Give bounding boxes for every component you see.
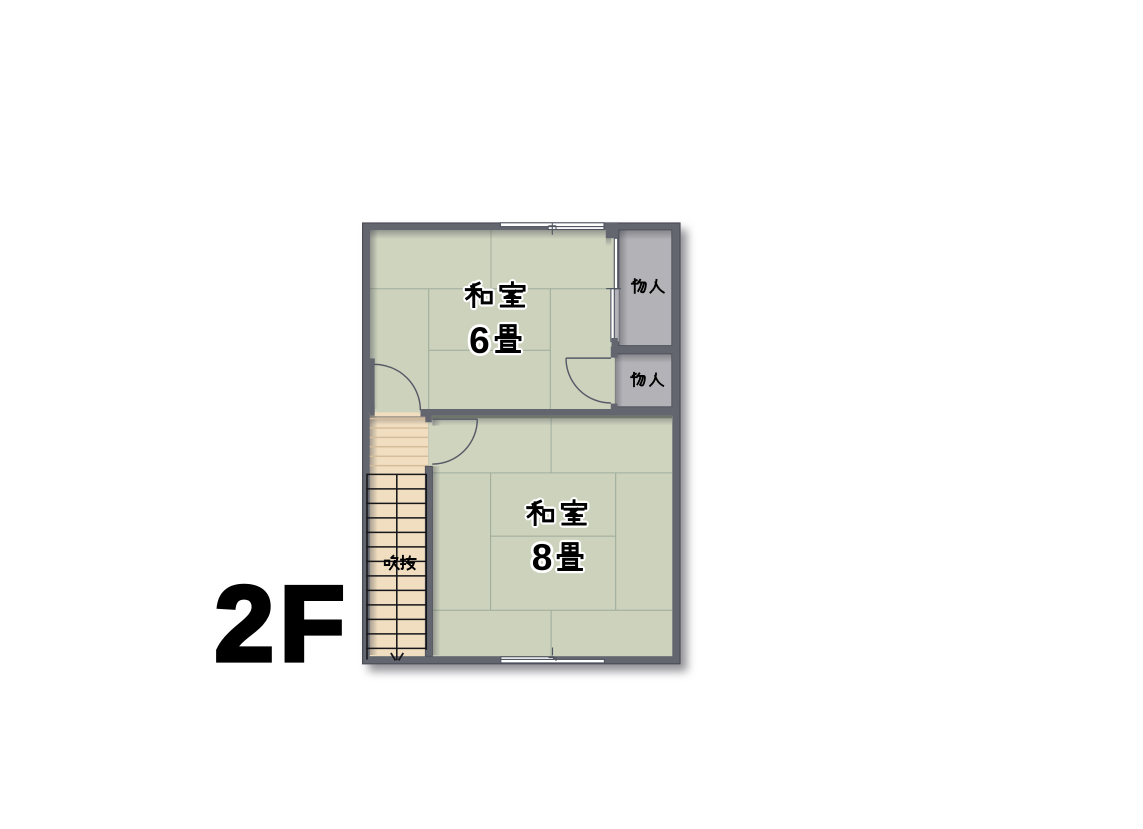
svg-text:8: 8 <box>532 537 553 578</box>
svg-text:6: 6 <box>469 320 490 361</box>
svg-text:2F: 2F <box>215 563 351 683</box>
